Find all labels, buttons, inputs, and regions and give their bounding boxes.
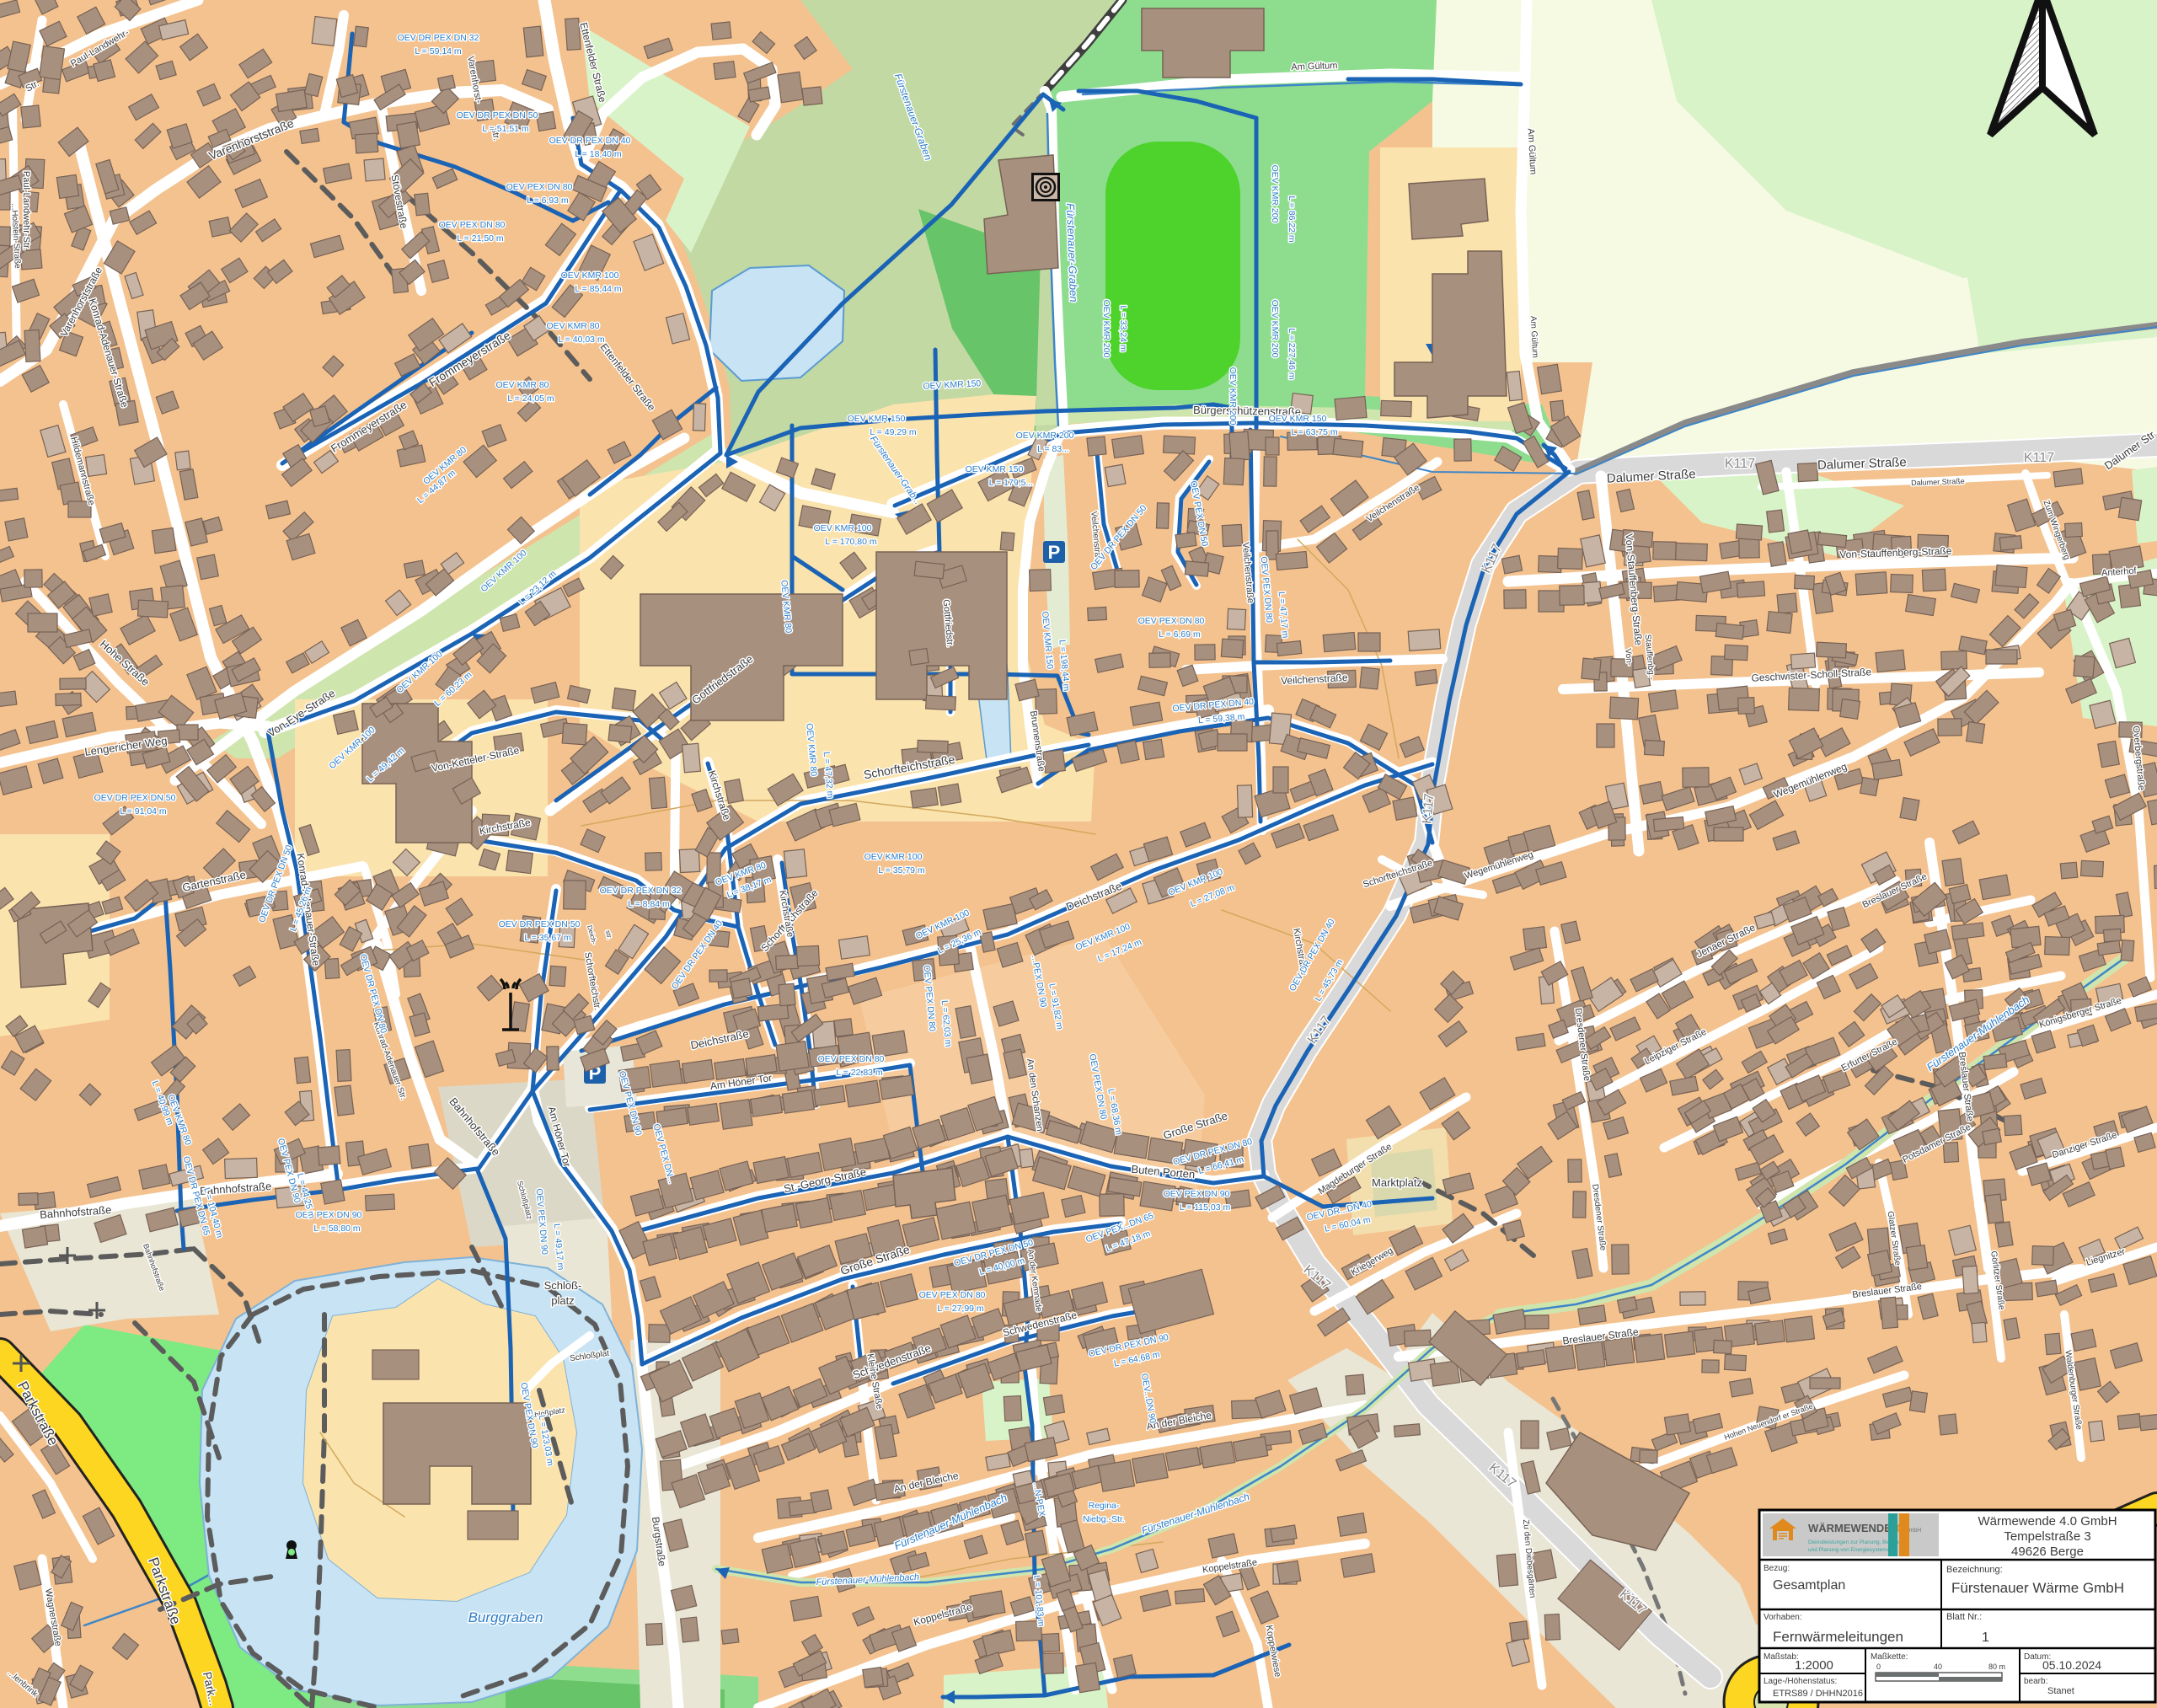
svg-text:Gesamtplan: Gesamtplan <box>1773 1578 1845 1593</box>
svg-text:OEV DR PEX DN 50: OEV DR PEX DN 50 <box>94 793 176 803</box>
svg-text:OEV KMR 150: OEV KMR 150 <box>1269 414 1327 424</box>
svg-text:OEV DR PEX DN 40: OEV DR PEX DN 40 <box>549 136 631 146</box>
svg-text:L = 227,46 m: L = 227,46 m <box>1287 328 1297 379</box>
svg-text:OEV KMR 100: OEV KMR 100 <box>864 852 923 862</box>
svg-text:K117: K117 <box>1725 457 1755 471</box>
svg-text:L = 86,22 m: L = 86,22 m <box>1287 195 1297 243</box>
svg-text:Fürstenauer Wärme GmbH: Fürstenauer Wärme GmbH <box>1951 1580 2124 1596</box>
svg-text:Bezug:: Bezug: <box>1764 1564 1790 1573</box>
svg-text:OEV KMR 150: OEV KMR 150 <box>966 464 1024 474</box>
svg-text:OEV KMR 200: OEV KMR 200 <box>1101 300 1111 358</box>
svg-text:L = 40,03 m: L = 40,03 m <box>558 335 605 345</box>
svg-text:Stanet: Stanet <box>2047 1686 2074 1696</box>
svg-text:L = 63,75 m: L = 63,75 m <box>1291 427 1338 437</box>
svg-text:Wärmewende 4.0 GmbH: Wärmewende 4.0 GmbH <box>1978 1514 2117 1529</box>
svg-text:platz: platz <box>551 1294 574 1307</box>
svg-text:OEV DR PEX DN 32: OEV DR PEX DN 32 <box>398 33 479 43</box>
svg-text:Fernwärmeleitungen: Fernwärmeleitungen <box>1773 1629 1903 1645</box>
svg-text:0: 0 <box>1876 1662 1881 1671</box>
svg-text:und Planung von Energiesysteme: und Planung von Energiesystemen <box>1808 1547 1893 1553</box>
svg-text:Niebg.-Str.: Niebg.-Str. <box>1083 1514 1125 1524</box>
svg-text:L = 22,83 m: L = 22,83 m <box>836 1068 883 1078</box>
svg-text:Lage-/Höhenstatus:: Lage-/Höhenstatus: <box>1764 1677 1837 1686</box>
svg-text:L = 27,99 m: L = 27,99 m <box>937 1304 984 1314</box>
svg-text:L = 85,44 m: L = 85,44 m <box>575 284 622 294</box>
svg-text:OEV KMR 200: OEV KMR 200 <box>1016 431 1074 441</box>
svg-text:Am Gültum: Am Gültum <box>1291 61 1337 72</box>
svg-text:OEV KMR 100: OEV KMR 100 <box>561 270 619 281</box>
svg-text:49626 Berge: 49626 Berge <box>2011 1545 2084 1559</box>
svg-text:bearb:: bearb: <box>2024 1677 2047 1686</box>
svg-text:Paul-Landwehr-Str.: Paul-Landwehr-Str. <box>21 171 31 250</box>
svg-text:K117: K117 <box>2024 451 2054 465</box>
svg-text:K117: K117 <box>1420 793 1437 825</box>
svg-text:L = 59,14 m: L = 59,14 m <box>415 46 462 56</box>
svg-text:1:2000: 1:2000 <box>1795 1658 1833 1673</box>
svg-text:Blatt Nr.:: Blatt Nr.: <box>1946 1612 1982 1622</box>
svg-text:ETRS89 / DHHN2016: ETRS89 / DHHN2016 <box>1773 1689 1863 1699</box>
svg-text:OEV KMR 200: OEV KMR 200 <box>1270 165 1280 223</box>
svg-text:OEV KMR 80: OEV KMR 80 <box>546 321 599 331</box>
svg-text:L = 35,67 m: L = 35,67 m <box>524 933 571 943</box>
svg-text:1: 1 <box>1982 1630 1989 1645</box>
svg-text:L = 18,40 m: L = 18,40 m <box>575 149 622 159</box>
svg-text:OEV KMR 200: OEV KMR 200 <box>1228 367 1238 426</box>
svg-text:80 m: 80 m <box>1988 1662 2005 1671</box>
svg-text:OEV DR PEX DN 50: OEV DR PEX DN 50 <box>499 919 581 929</box>
svg-text:WÄRMEWENDE: WÄRMEWENDE <box>1808 1522 1892 1534</box>
svg-text:L = 49,29 m: L = 49,29 m <box>870 427 917 437</box>
svg-text:OEV KMR 100: OEV KMR 100 <box>814 523 872 533</box>
svg-text:OEV KMR 80: OEV KMR 80 <box>495 380 549 390</box>
svg-text:L = 8,84 m: L = 8,84 m <box>628 899 670 909</box>
svg-text:Burggraben: Burggraben <box>468 1609 543 1625</box>
svg-text:L = 115,03 m: L = 115,03 m <box>1180 1202 1231 1213</box>
svg-text:OEV PEX DN 90: OEV PEX DN 90 <box>1164 1189 1230 1199</box>
svg-text:OEV KMR 150: OEV KMR 150 <box>848 414 906 424</box>
svg-text:Bezeichnung:: Bezeichnung: <box>1946 1565 2003 1575</box>
svg-text:L = 21,50 m: L = 21,50 m <box>457 233 504 244</box>
svg-text:OEV PEX DN 80: OEV PEX DN 80 <box>506 182 573 192</box>
svg-text:L = 35,79 m: L = 35,79 m <box>878 865 925 875</box>
svg-text:OEV DR PEX DN 32: OEV DR PEX DN 32 <box>600 886 682 896</box>
svg-text:L = 179,5...: L = 179,5... <box>989 478 1033 488</box>
svg-text:OEV DR PEX DN 50: OEV DR PEX DN 50 <box>457 110 538 120</box>
svg-text:Vorhaben:: Vorhaben: <box>1764 1613 1802 1622</box>
svg-text:Schloß-: Schloß- <box>544 1279 582 1292</box>
svg-text:OEV KMR 200: OEV KMR 200 <box>1270 300 1280 358</box>
svg-text:Tempelstraße 3: Tempelstraße 3 <box>2004 1529 2090 1544</box>
svg-text:Von-: Von- <box>1623 648 1634 666</box>
svg-text:Marktplatz: Marktplatz <box>1372 1176 1422 1189</box>
svg-text:L = 6,69 m: L = 6,69 m <box>1159 629 1201 640</box>
svg-text:OEV PEX DN 80: OEV PEX DN 80 <box>919 1290 986 1300</box>
svg-text:40: 40 <box>1934 1662 1942 1671</box>
svg-text:L = 83...: L = 83... <box>1037 444 1069 454</box>
svg-text:L = 91,04 m: L = 91,04 m <box>120 806 167 817</box>
svg-text:L = 170,80 m: L = 170,80 m <box>825 537 876 547</box>
svg-text:OEV PEX DN 80: OEV PEX DN 80 <box>818 1054 885 1064</box>
svg-text:L = 51,51 m: L = 51,51 m <box>482 124 529 134</box>
svg-text:OEV PEX DN 80: OEV PEX DN 80 <box>439 220 506 230</box>
svg-text:05.10.2024: 05.10.2024 <box>2042 1658 2101 1672</box>
svg-text:Maßkette:: Maßkette: <box>1871 1652 1908 1662</box>
svg-text:L = 24,05 m: L = 24,05 m <box>507 394 554 404</box>
svg-text:L = 6,93 m: L = 6,93 m <box>527 195 569 206</box>
svg-text:L = 33,24 m: L = 33,24 m <box>1118 305 1128 352</box>
svg-text:P: P <box>1048 542 1061 563</box>
svg-text:Maßstab:: Maßstab: <box>1764 1652 1799 1662</box>
svg-text:OEV PEX DN 80: OEV PEX DN 80 <box>1138 616 1205 626</box>
svg-text:L = 58,80 m: L = 58,80 m <box>313 1223 361 1234</box>
svg-text:Regina-: Regina- <box>1089 1501 1120 1511</box>
